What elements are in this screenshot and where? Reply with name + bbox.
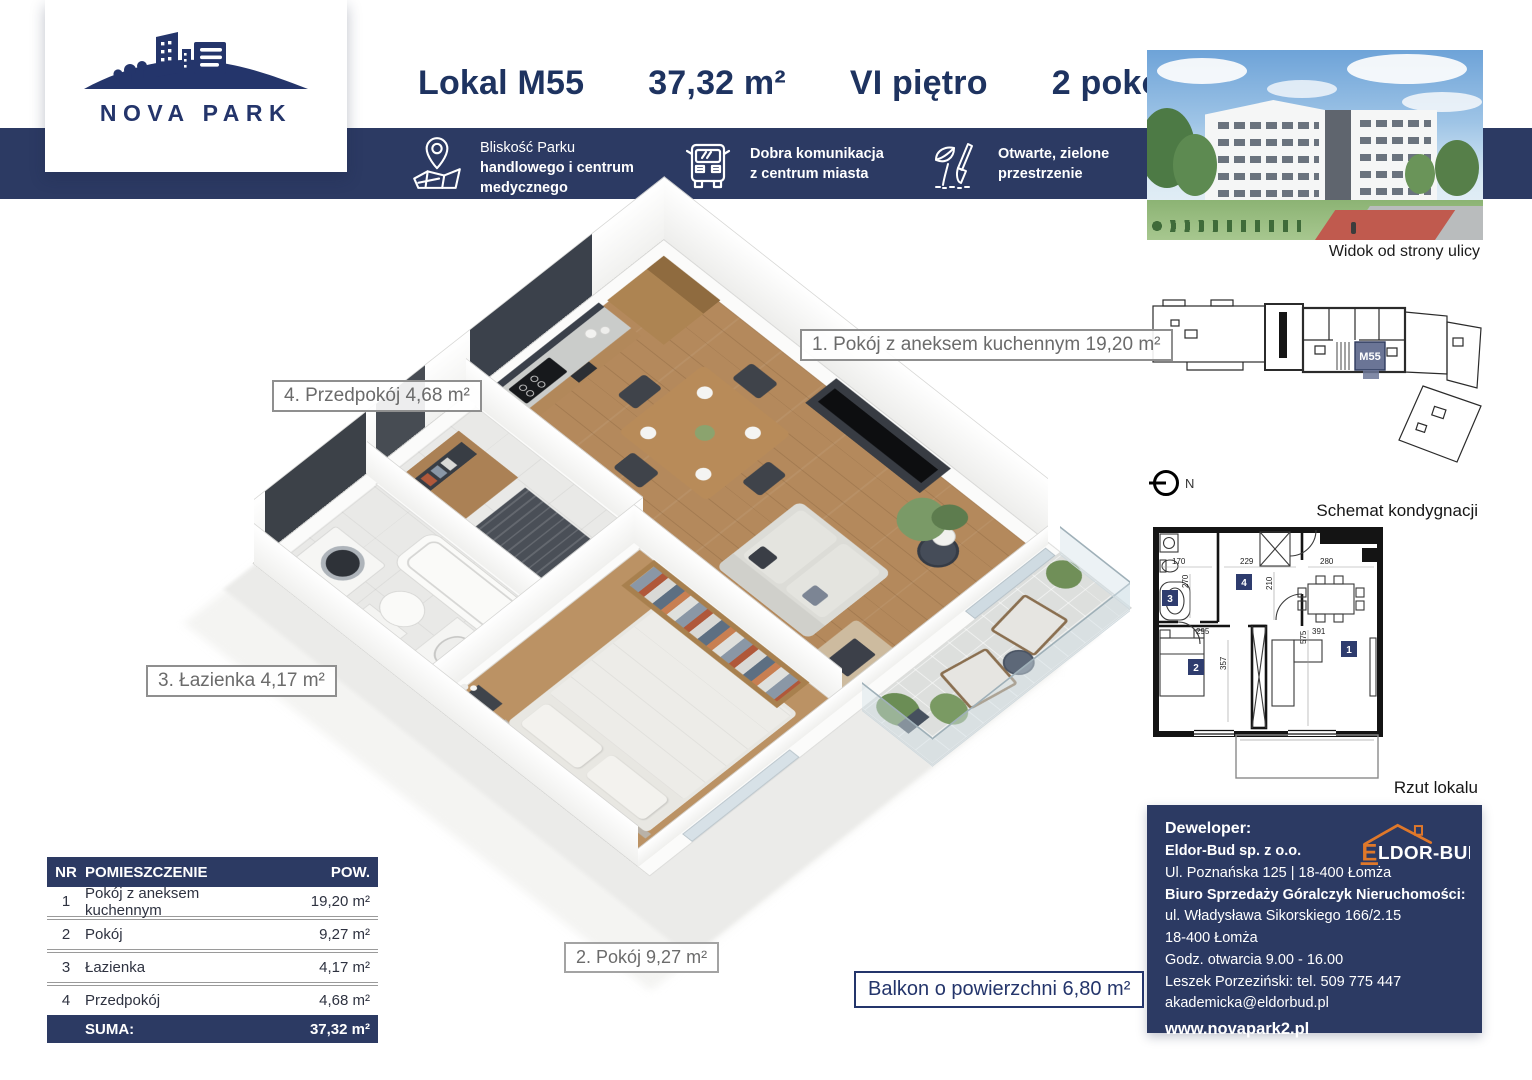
- dim-210: 210: [1265, 576, 1274, 590]
- unit-floor: VI piętro: [850, 64, 988, 103]
- dim-270: 270: [1181, 574, 1190, 588]
- table-row: 4 Przedpokój 4,68 m²: [47, 986, 378, 1015]
- sum-value: 37,32 m²: [280, 1021, 378, 1038]
- table-header: NR POMIESZCZENIE POW.: [47, 857, 378, 887]
- table-sum-row: SUMA: 37,32 m²: [47, 1015, 378, 1043]
- room-tile-2: 2: [1193, 663, 1199, 674]
- compass-n: N: [1185, 476, 1194, 491]
- dim-357: 357: [1219, 656, 1228, 670]
- plant-trowel-icon: [928, 138, 984, 199]
- room-tile-1: 1: [1346, 645, 1352, 656]
- label-bathroom: 3. Łazienka 4,17 m²: [146, 665, 337, 697]
- dim-391: 391: [1312, 627, 1326, 636]
- feature-green-label: Otwarte, zielone przestrzenie: [998, 138, 1153, 199]
- label-hallway: 4. Przedpokój 4,68 m²: [272, 380, 482, 412]
- dim-295: 295: [1196, 627, 1210, 636]
- eldor-bud-logo: E LDOR-BUD: [1352, 815, 1470, 872]
- label-living-room: 1. Pokój z aneksem kuchennym 19,20 m²: [800, 329, 1173, 361]
- header-title: Lokal M55 37,32 m² VI piętro 2 pokoje: [418, 64, 1191, 103]
- compass-icon: N: [1147, 466, 1201, 505]
- col-pow: POW.: [280, 864, 378, 881]
- sum-label: SUMA:: [85, 1021, 280, 1038]
- contact-phone: Leszek Porzeziński: tel. 509 775 447: [1165, 972, 1466, 994]
- office-address-2: 18-400 Łomża: [1165, 928, 1466, 950]
- feature-transport: Dobra komunikacja z centrum miasta: [680, 138, 900, 199]
- room-tile-3: 3: [1167, 594, 1173, 605]
- table-row: 1 Pokój z aneksem kuchennym 19,20 m²: [47, 887, 378, 916]
- m55-tag: M55: [1359, 351, 1380, 363]
- map-pin-icon: [408, 132, 466, 198]
- car-icon: [680, 138, 736, 199]
- office-address-1: ul. Władysława Sikorskiego 166/2.15: [1165, 906, 1466, 928]
- dim-280: 280: [1320, 557, 1334, 566]
- eldor-wordmark: LDOR-BUD: [1378, 843, 1470, 864]
- photo-caption: Widok od strony ulicy: [1329, 243, 1480, 261]
- photo-bike-path: [1315, 210, 1455, 240]
- dim-170: 170: [1172, 557, 1186, 566]
- photo-cyclist: [1351, 222, 1356, 234]
- feature-green: Otwarte, zielone przestrzenie: [928, 138, 1153, 199]
- unit-plan-caption: Rzut lokalu: [1394, 778, 1478, 798]
- contact-email: akademicka@eldorbud.pl: [1165, 993, 1466, 1015]
- website: www.novapark2.pl: [1165, 1017, 1466, 1042]
- room-tile-4: 4: [1241, 578, 1247, 589]
- sales-office-heading: Biuro Sprzedaży Góralczyk Nieruchomości:: [1165, 885, 1466, 907]
- nova-park-wordmark: NOVA PARK: [100, 100, 292, 126]
- col-nr: NR: [47, 864, 85, 881]
- unit-number: Lokal M55: [418, 64, 584, 103]
- label-balcony: Balkon o powierzchni 6,80 m²: [854, 971, 1144, 1008]
- building-photo: [1147, 50, 1483, 240]
- unit-plan-2d: 170 229 280 270 210 295 575 391 357 1 2 …: [1148, 522, 1388, 785]
- feature-park: Bliskość Parku handlowego i centrum medy…: [408, 132, 650, 198]
- nova-park-logo: NOVA PARK: [45, 0, 347, 172]
- dim-229: 229: [1240, 557, 1254, 566]
- feature-transport-label: Dobra komunikacja z centrum miasta: [750, 138, 900, 199]
- feature-park-label: Bliskość Parku handlowego i centrum medy…: [480, 132, 650, 198]
- building-block-left: [1205, 100, 1327, 204]
- col-name: POMIESZCZENIE: [85, 864, 280, 881]
- table-row: 3 Łazienka 4,17 m²: [47, 953, 378, 982]
- unit-area: 37,32 m²: [648, 64, 786, 103]
- rooms-table: NR POMIESZCZENIE POW. 1 Pokój z aneksem …: [47, 857, 378, 1043]
- table-row: 2 Pokój 9,27 m²: [47, 920, 378, 949]
- office-hours: Godz. otwarcia 9.00 - 16.00: [1165, 950, 1466, 972]
- photo-hedge: [1151, 220, 1301, 232]
- dim-575: 575: [1299, 630, 1308, 644]
- schematic-caption: Schemat kondygnacji: [1316, 501, 1478, 521]
- label-bedroom: 2. Pokój 9,27 m²: [564, 942, 719, 973]
- developer-box: E LDOR-BUD Deweloper: Eldor-Bud sp. z o.…: [1147, 805, 1482, 1033]
- floor-schematic: M55: [1147, 290, 1483, 475]
- brochure-page: Lokal M55 37,32 m² VI piętro 2 pokoje Bl…: [0, 0, 1532, 1080]
